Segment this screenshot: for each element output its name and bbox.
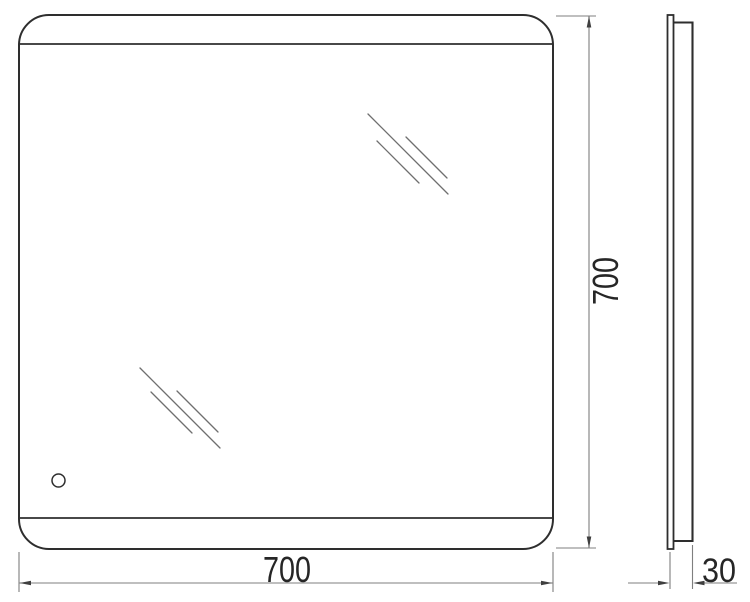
mirror-technical-drawing: 700 700 30 [0,0,750,602]
hatch-line [377,141,419,183]
hatch-line [140,368,220,448]
arrow-down-icon [587,537,592,549]
front-view [19,15,553,549]
height-dimension-label: 700 [585,257,626,305]
width-dimension-label: 700 [263,549,311,590]
glass-reflection-hatch-bottom-left [140,368,220,448]
side-view [668,15,693,549]
arrow-right-icon [541,581,553,586]
arrow-right-icon [658,581,670,586]
mirror-outline [19,15,553,549]
glass-reflection-hatch-top-right [368,114,448,194]
arrow-left-icon [20,581,32,586]
touch-sensor-circle [52,474,65,487]
arrow-up-icon [587,16,592,28]
hatch-line [151,392,192,433]
depth-dimension-label: 30 [702,552,736,590]
side-view-backing-panel [674,23,693,542]
hatch-line [368,114,448,194]
side-view-glass-panel [668,15,674,549]
drawing-svg: 700 700 30 [0,0,750,602]
